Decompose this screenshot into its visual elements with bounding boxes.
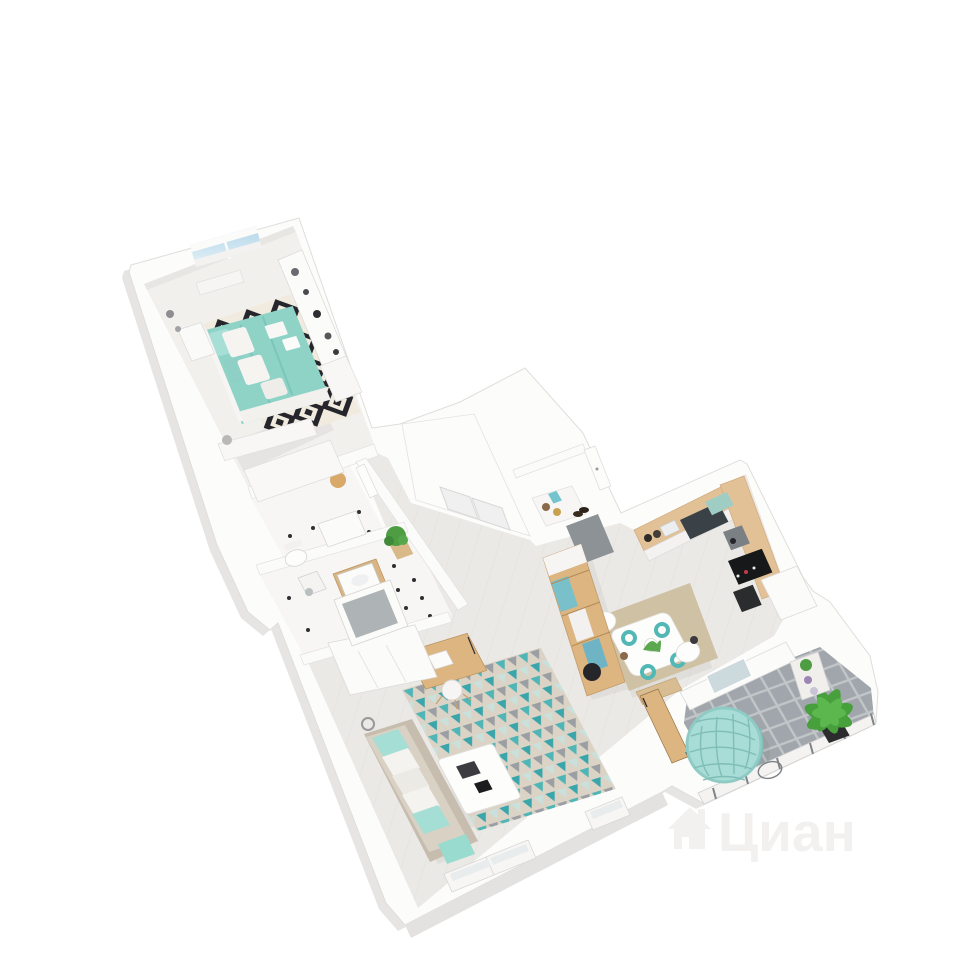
svg-text:Циан: Циан [718,801,856,863]
